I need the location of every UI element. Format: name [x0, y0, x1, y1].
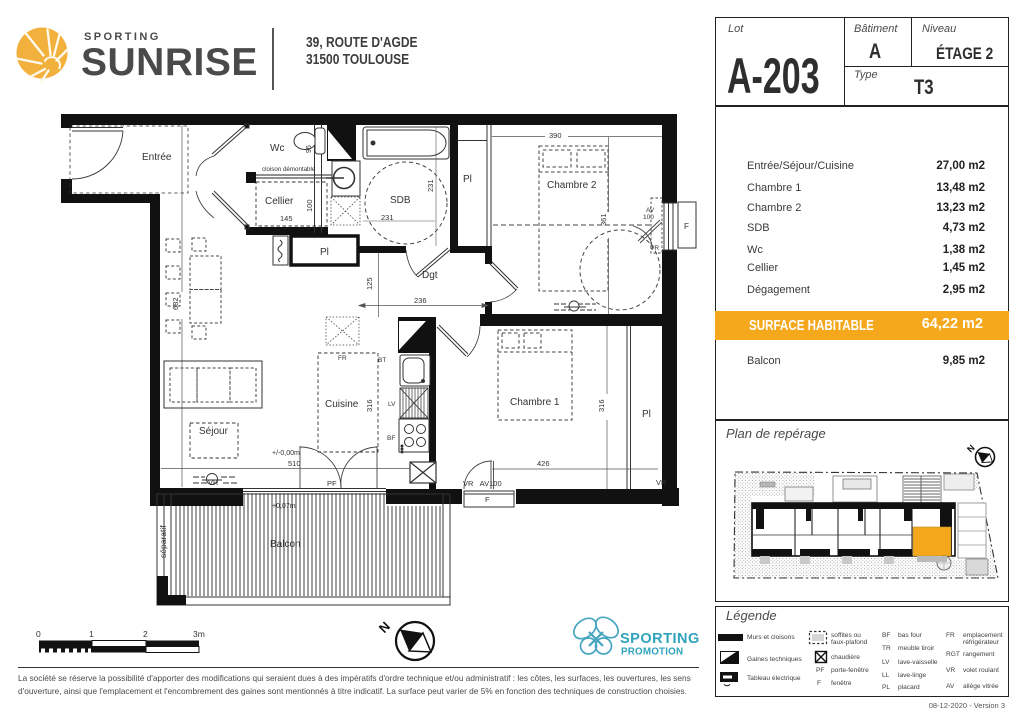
svg-text:361: 361	[599, 213, 608, 226]
svg-text:316: 316	[365, 399, 374, 412]
svg-text:Chambre 2: Chambre 2	[547, 180, 597, 191]
svg-text:Chambre 1: Chambre 1	[510, 397, 560, 408]
svg-text:231: 231	[381, 213, 394, 222]
svg-text:Balcon: Balcon	[270, 539, 301, 550]
svg-text:FR: FR	[338, 355, 347, 362]
svg-text:VR: VR	[656, 478, 667, 487]
svg-text:Cuisine: Cuisine	[325, 399, 359, 410]
svg-text:+0,07m: +0,07m	[272, 503, 296, 510]
svg-text:125: 125	[365, 277, 374, 290]
svg-text:séparatif: séparatif	[158, 525, 168, 558]
svg-text:N: N	[965, 443, 977, 455]
svg-text:F: F	[684, 222, 689, 231]
svg-text:LV: LV	[388, 401, 396, 408]
svg-text:1: 1	[89, 629, 94, 639]
svg-text:682: 682	[171, 297, 180, 310]
svg-text:390: 390	[549, 131, 562, 140]
svg-text:F: F	[485, 495, 490, 504]
svg-text:Pl: Pl	[463, 174, 472, 185]
svg-text:Wc: Wc	[270, 143, 284, 154]
svg-text:3m: 3m	[193, 629, 205, 639]
svg-text:Dgt: Dgt	[422, 270, 438, 281]
svg-text:Entrée: Entrée	[142, 152, 172, 163]
svg-text:231: 231	[426, 179, 435, 192]
svg-text:426: 426	[537, 459, 550, 468]
svg-text:236: 236	[414, 296, 427, 305]
svg-text:0: 0	[36, 629, 41, 639]
svg-text:100: 100	[305, 199, 314, 212]
svg-text:+/-0,00m: +/-0,00m	[272, 450, 300, 457]
svg-text:Pl: Pl	[320, 247, 329, 258]
svg-text:VR AV100: VR AV100	[463, 479, 502, 488]
svg-text:SDB: SDB	[390, 195, 411, 206]
svg-text:2: 2	[143, 629, 148, 639]
svg-text:VR: VR	[650, 245, 659, 252]
svg-text:N: N	[376, 619, 393, 636]
svg-text:cloison démontable: cloison démontable	[262, 166, 316, 173]
svg-text:316: 316	[597, 399, 606, 412]
svg-text:PF: PF	[327, 479, 337, 488]
svg-text:145: 145	[280, 214, 293, 223]
svg-text:95: 95	[306, 145, 313, 153]
svg-text:Pl: Pl	[642, 409, 651, 420]
svg-text:BF: BF	[387, 435, 395, 442]
svg-text:Cellier: Cellier	[265, 196, 294, 207]
svg-text:Séjour: Séjour	[199, 426, 229, 437]
svg-text:AV: AV	[646, 207, 655, 214]
svg-text:510: 510	[288, 459, 301, 468]
svg-text:BT: BT	[378, 357, 386, 364]
svg-text:VR: VR	[208, 478, 219, 487]
svg-text:100: 100	[643, 214, 654, 221]
